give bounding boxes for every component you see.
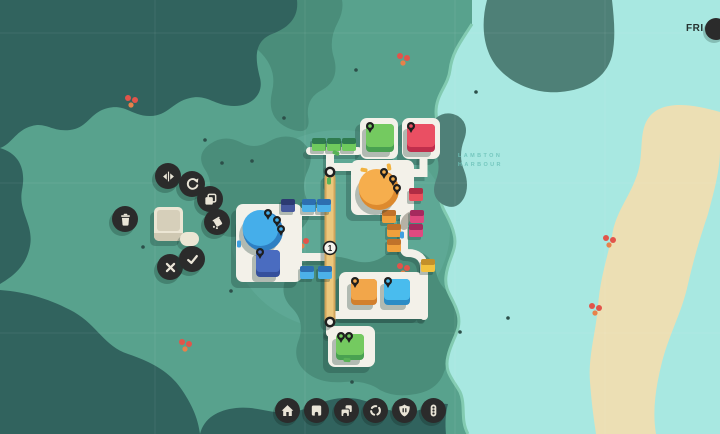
house[interactable]: [385, 224, 401, 240]
tree-dot: [474, 90, 478, 94]
duplicate-icon: [203, 192, 218, 207]
confirm-button[interactable]: [179, 246, 205, 272]
house[interactable]: [408, 210, 424, 226]
tree-dot: [220, 161, 224, 165]
placement-tile-card[interactable]: [152, 205, 186, 253]
day-label: FRI: [686, 23, 704, 34]
rotate-icon: [185, 177, 200, 192]
car: [327, 178, 331, 185]
game-map[interactable]: LAMBTONHARBOUR: [0, 0, 720, 434]
destination-building[interactable]: [347, 277, 377, 310]
car: [237, 241, 241, 248]
tree-dot: [229, 289, 233, 293]
map-label: HARBOUR: [458, 162, 503, 168]
house-icon: [280, 403, 295, 418]
buildings-icon: [339, 403, 354, 418]
house[interactable]: [300, 199, 316, 215]
car: [343, 358, 350, 363]
traffic-light-button[interactable]: [421, 398, 446, 423]
destination-building[interactable]: [252, 248, 280, 282]
car: [400, 232, 404, 239]
bridge-count-badge: 1: [324, 242, 337, 255]
building-icon: [309, 403, 324, 418]
check-icon: [185, 252, 200, 267]
house[interactable]: [310, 138, 326, 154]
road-ring: [326, 168, 334, 176]
cancel-icon: [163, 260, 178, 275]
tile-card-band: [154, 233, 183, 241]
destination-building[interactable]: [362, 122, 394, 157]
svg-text:1: 1: [328, 244, 333, 253]
roundabout-button[interactable]: [363, 398, 388, 423]
house[interactable]: [279, 199, 295, 215]
house[interactable]: [419, 259, 435, 275]
duplicate-button[interactable]: [197, 186, 223, 212]
motorway-button[interactable]: [392, 398, 417, 423]
clock-button[interactable]: [705, 18, 720, 40]
tile-card-inner: [157, 210, 180, 231]
game-screen: LAMBTONHARBOUR: [0, 0, 720, 434]
house[interactable]: [298, 266, 314, 282]
destination-building[interactable]: [403, 122, 435, 157]
tree-dot: [458, 330, 462, 334]
tree-dot: [141, 245, 145, 249]
house[interactable]: [407, 188, 423, 204]
house[interactable]: [407, 224, 423, 240]
tree-dot: [282, 116, 286, 120]
flip-horizontal-icon: [161, 169, 176, 184]
house[interactable]: [385, 239, 401, 255]
house[interactable]: [340, 138, 356, 154]
house[interactable]: [315, 199, 331, 215]
destination-building[interactable]: [380, 277, 410, 310]
road-ring: [326, 318, 334, 326]
paint-button[interactable]: [204, 209, 230, 235]
destinations-button[interactable]: [334, 398, 359, 423]
tree-dot: [250, 159, 254, 163]
trash-icon: [118, 212, 133, 227]
houses-button[interactable]: [275, 398, 300, 423]
flip-button[interactable]: [155, 163, 181, 189]
destination-button[interactable]: [304, 398, 329, 423]
delete-button[interactable]: [112, 206, 138, 232]
tree-dot: [354, 68, 358, 72]
tree-dot: [203, 138, 207, 142]
house[interactable]: [316, 266, 332, 282]
paint-icon: [210, 215, 225, 230]
map-label: LAMBTON: [458, 153, 502, 159]
traffic-light-icon: [426, 403, 441, 418]
shield-icon: [397, 403, 412, 418]
tree-dot: [506, 316, 510, 320]
tile-card-tab: [180, 232, 199, 246]
tree-dot: [350, 380, 354, 384]
roundabout-icon: [368, 403, 383, 418]
